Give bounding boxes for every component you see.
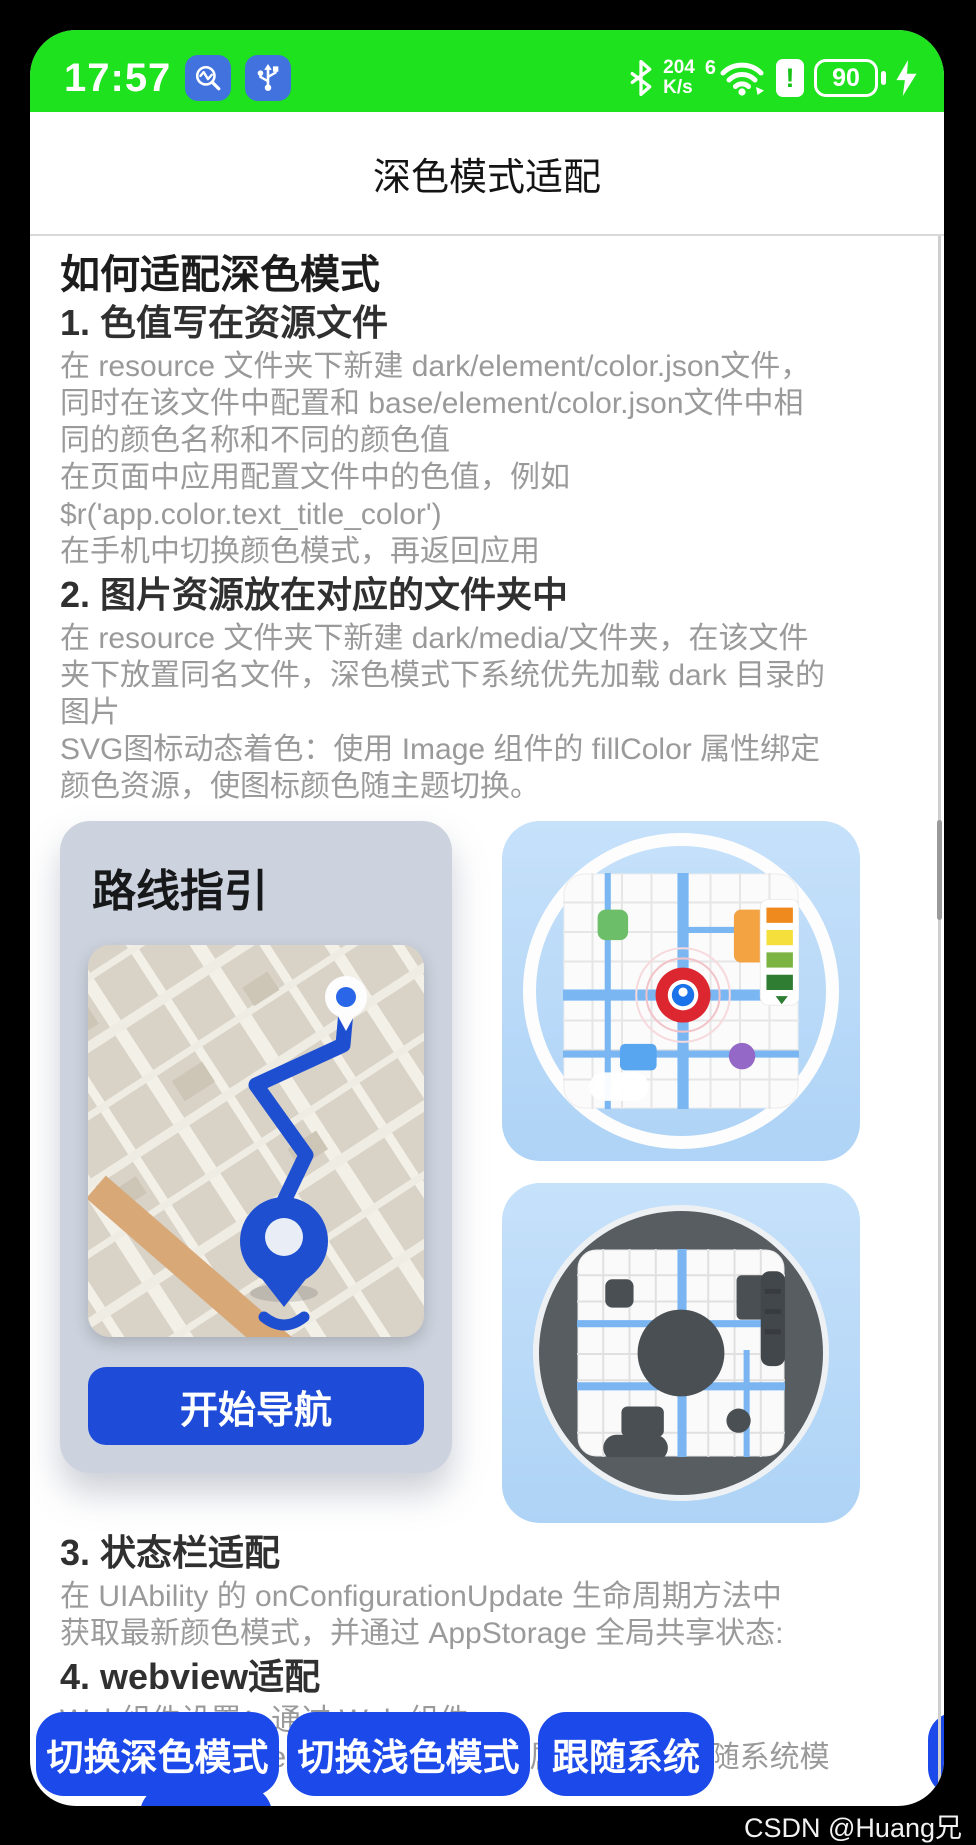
footer-button-clipped[interactable] bbox=[140, 1786, 272, 1806]
app-monitor-icon bbox=[194, 64, 222, 92]
page-title: 深色模式适配 bbox=[373, 146, 601, 201]
network-speed-unit: K/s bbox=[663, 77, 693, 98]
network-speed-value: 204 bbox=[663, 57, 695, 78]
wifi-group: 6 bbox=[705, 59, 766, 97]
bluetooth-icon bbox=[629, 60, 653, 96]
sim-alert-icon: ! bbox=[776, 59, 804, 97]
section-3-heading: 3. 状态栏适配 bbox=[60, 1531, 904, 1575]
network-speed: 204 K/s bbox=[663, 58, 695, 98]
battery-icon: 90 bbox=[814, 59, 878, 97]
map-icon-card-dark bbox=[502, 1183, 860, 1523]
app-monitor-badge bbox=[185, 55, 231, 101]
illustration-row: 路线指引 bbox=[60, 821, 904, 1523]
route-guidance-card: 路线指引 bbox=[60, 821, 452, 1473]
icon-card-column bbox=[502, 821, 860, 1523]
dark-circle bbox=[533, 1205, 829, 1501]
battery-level: 90 bbox=[832, 64, 860, 93]
switch-dark-mode-button[interactable]: 切换深色模式 bbox=[36, 1712, 279, 1796]
follow-system-button[interactable]: 跟随系统 bbox=[538, 1712, 714, 1796]
battery-nub bbox=[881, 71, 886, 85]
wifi-icon bbox=[718, 59, 766, 97]
wifi-badge-number: 6 bbox=[705, 57, 716, 80]
section-1-body: 在 resource 文件夹下新建 dark/element/color.jso… bbox=[60, 348, 904, 570]
map-app-icon-light bbox=[563, 873, 799, 1109]
scrollbar-track[interactable] bbox=[938, 236, 941, 1806]
phone-screen: 17:57 204 bbox=[30, 30, 944, 1806]
section-3-body: 在 UIAbility 的 onConfigurationUpdate 生命周期… bbox=[60, 1578, 904, 1652]
clock: 17:57 bbox=[64, 56, 171, 101]
status-bar: 17:57 204 bbox=[30, 30, 944, 112]
status-indicators: 204 K/s 6 ! 90 bbox=[629, 58, 918, 98]
switch-light-mode-button[interactable]: 切换浅色模式 bbox=[287, 1712, 530, 1796]
usb-badge bbox=[245, 55, 291, 101]
start-navigation-button[interactable]: 开始导航 bbox=[88, 1367, 424, 1445]
section-2-body: 在 resource 文件夹下新建 dark/media/文件夹，在该文件 夹下… bbox=[60, 620, 904, 805]
section-4-heading: 4. webview适配 bbox=[60, 1655, 904, 1699]
map-illustration bbox=[88, 945, 424, 1337]
map-icon-card-light bbox=[502, 821, 860, 1161]
route-card-title: 路线指引 bbox=[92, 855, 424, 919]
route-map-image bbox=[88, 945, 424, 1337]
map-app-icon-dark bbox=[577, 1249, 785, 1457]
article-heading: 如何适配深色模式 bbox=[60, 252, 904, 298]
charging-bolt-icon bbox=[896, 60, 918, 96]
article-content: 如何适配深色模式 1. 色值写在资源文件 在 resource 文件夹下新建 d… bbox=[30, 236, 944, 1776]
battery-group: 90 bbox=[814, 59, 886, 97]
scrollbar-thumb[interactable] bbox=[937, 820, 942, 920]
title-bar: 深色模式适配 bbox=[30, 112, 944, 236]
section-1-heading: 1. 色值写在资源文件 bbox=[60, 301, 904, 345]
section-2-heading: 2. 图片资源放在对应的文件夹中 bbox=[60, 573, 904, 617]
watermark: CSDN @Huang兄 bbox=[744, 1806, 962, 1845]
usb-icon bbox=[254, 64, 282, 92]
